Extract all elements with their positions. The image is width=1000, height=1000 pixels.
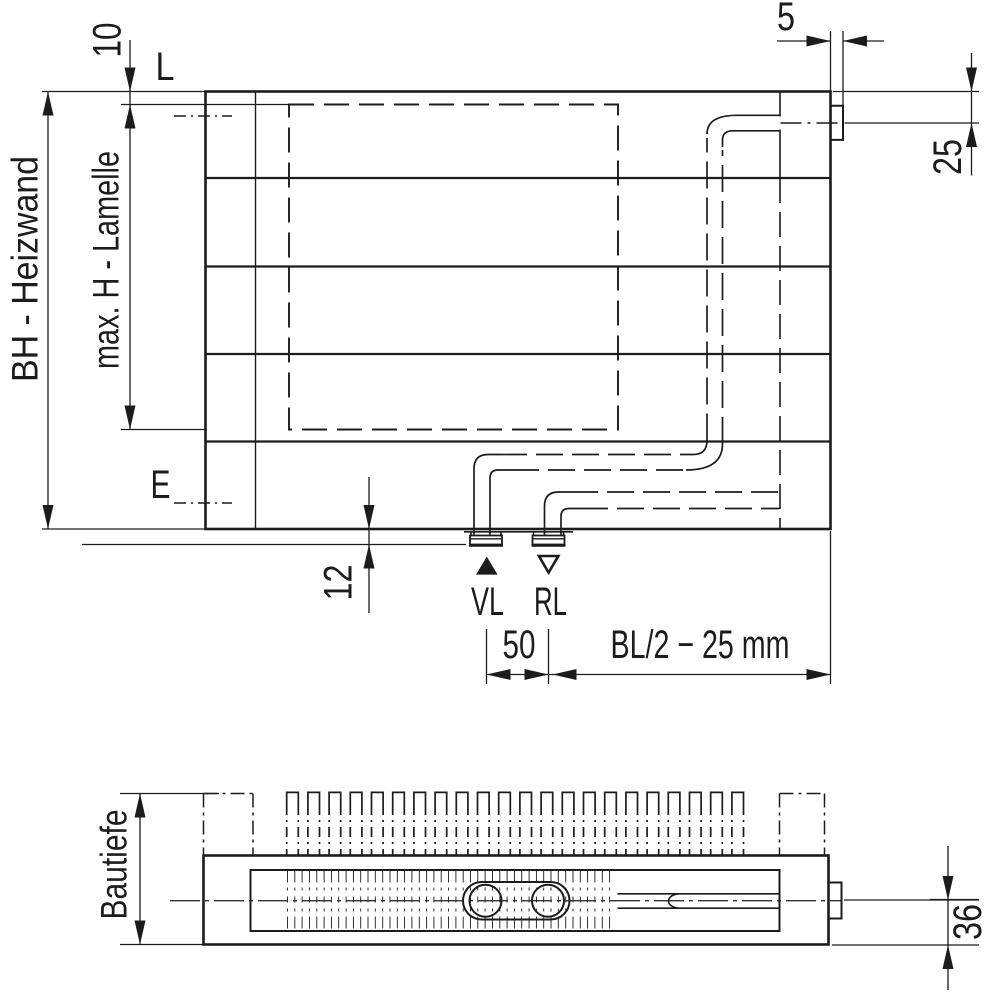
svg-text:VL: VL	[471, 580, 504, 624]
svg-text:RL: RL	[534, 580, 567, 624]
svg-text:BH - Heizwand: BH - Heizwand	[5, 156, 46, 382]
svg-text:BL/2 − 25 mm: BL/2 − 25 mm	[611, 623, 790, 667]
svg-text:E: E	[151, 463, 171, 507]
svg-text:12: 12	[317, 565, 361, 601]
svg-text:36: 36	[946, 904, 990, 940]
svg-text:Bautiefe: Bautiefe	[94, 810, 135, 920]
svg-text:25: 25	[926, 139, 970, 175]
svg-text:50: 50	[503, 623, 536, 667]
svg-text:10: 10	[86, 23, 130, 58]
svg-text:max. H - Lamelle: max. H - Lamelle	[86, 151, 127, 369]
svg-text:5: 5	[777, 0, 795, 39]
svg-text:L: L	[156, 45, 175, 89]
